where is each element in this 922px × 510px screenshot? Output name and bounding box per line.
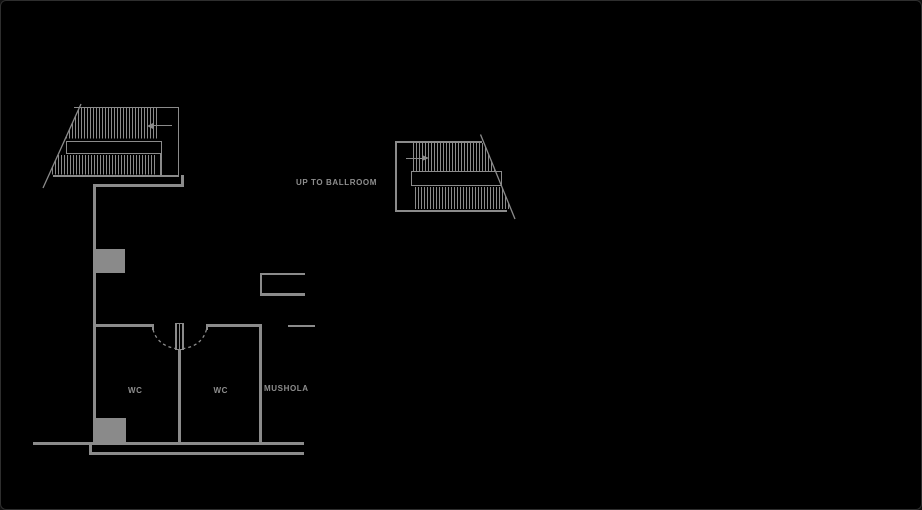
wall-left-exterior	[93, 184, 97, 445]
wall-wc-divider	[178, 349, 181, 444]
niche-left-edge	[260, 273, 263, 296]
door-jamb-left	[152, 324, 155, 330]
door-swing-left	[153, 330, 176, 349]
double-door-leaves	[175, 323, 184, 350]
stair1-direction-line	[152, 125, 172, 126]
stair2-top-edge	[395, 141, 483, 143]
stair1-lower-flight-treads	[49, 155, 157, 175]
wall-bottom-lower	[89, 452, 304, 456]
annotation-up-to-ballroom: UP TO BALLROOM	[296, 178, 377, 188]
wall-right-interior	[259, 324, 262, 444]
stair1-landing	[66, 141, 162, 155]
column-upper	[94, 249, 125, 273]
stair1-landing-right-edge	[160, 154, 162, 175]
room-label-wc-left: WC	[128, 386, 143, 396]
stair2-direction-arrow-icon	[422, 155, 429, 161]
door-swing-right	[184, 330, 207, 349]
stair1-upper-flight-treads	[63, 108, 159, 139]
stair2-direction-line	[406, 158, 422, 159]
stair2-left-edge	[395, 141, 397, 213]
wall-top-segment-left	[93, 324, 154, 327]
floor-plan-canvas: UP TO BALLROOM WC WC MUSHOLA	[0, 0, 922, 510]
column-lower	[93, 418, 127, 442]
stair1-direction-arrow-icon	[147, 123, 153, 129]
room-label-wc-right: WC	[214, 386, 229, 396]
stair1-bottom-edge	[53, 175, 179, 177]
niche-bottom-edge	[260, 293, 305, 295]
wall-mushola-right-segment	[288, 325, 315, 328]
wall-bottom-upper	[33, 442, 305, 445]
wall-top-segment-right	[206, 324, 261, 327]
stair1-right-edge	[178, 107, 180, 178]
stair2-lower-flight-treads	[415, 187, 511, 210]
room-label-mushola: MUSHOLA	[264, 384, 309, 394]
wall-under-stair1	[93, 184, 184, 187]
plan-linework-overlay	[1, 1, 922, 510]
stair2-bottom-edge	[395, 210, 507, 212]
stair1-top-edge	[74, 107, 179, 109]
stair2-landing	[411, 171, 502, 186]
niche-top-edge	[260, 273, 305, 275]
